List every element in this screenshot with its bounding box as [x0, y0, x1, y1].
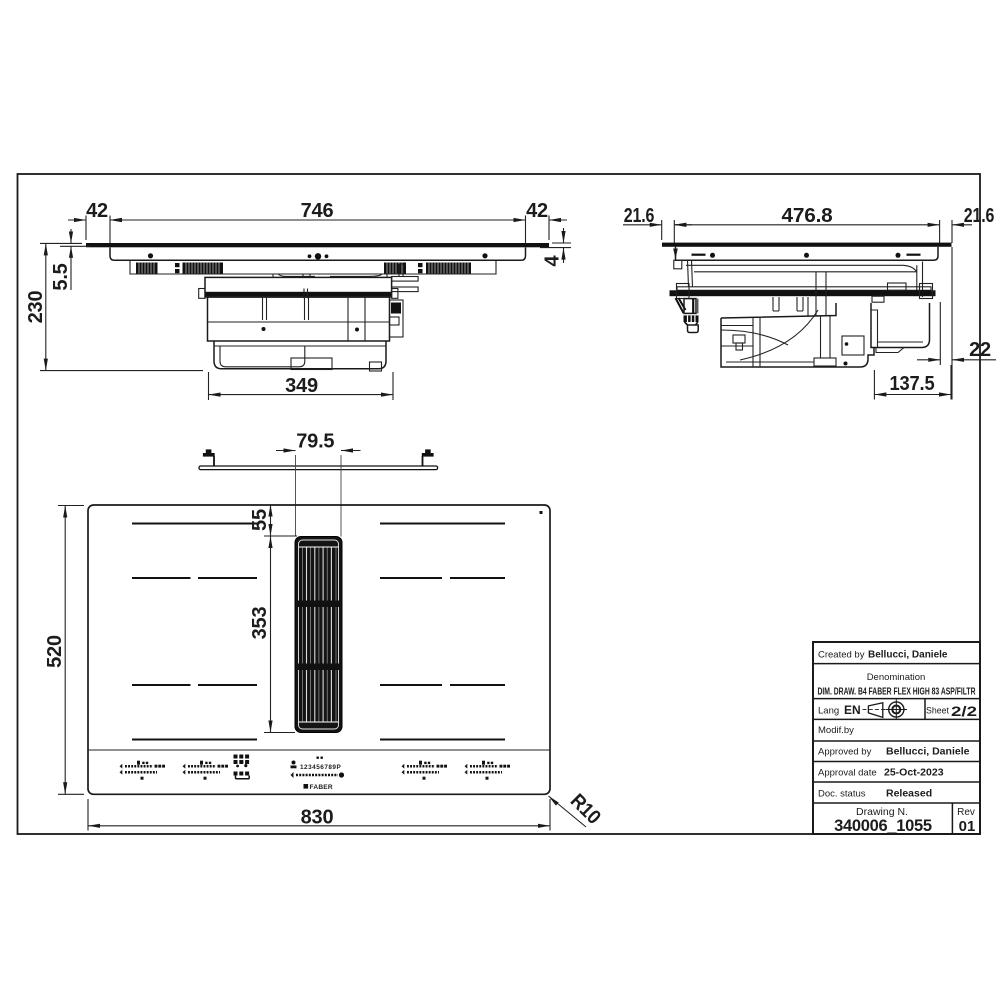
svg-text:Approval date: Approval date	[818, 768, 877, 779]
svg-text:42: 42	[86, 200, 108, 222]
svg-text:4: 4	[542, 254, 564, 266]
svg-text:Doc. status: Doc. status	[818, 789, 866, 800]
svg-text:55: 55	[249, 509, 271, 531]
svg-text:Released: Released	[886, 788, 932, 800]
svg-text:137.5: 137.5	[890, 373, 935, 395]
svg-text:DIM. DRAW. B4 FABER FLEX HIGH: DIM. DRAW. B4 FABER FLEX HIGH 83 ASP/FIL…	[818, 687, 977, 698]
svg-text:520: 520	[44, 635, 66, 668]
svg-text:830: 830	[301, 806, 334, 828]
svg-text:746: 746	[301, 200, 334, 222]
svg-text:Rev: Rev	[957, 807, 975, 818]
svg-text:Denomination: Denomination	[867, 672, 926, 683]
svg-text:21.6: 21.6	[624, 205, 655, 227]
svg-text:42: 42	[526, 200, 548, 222]
svg-text:Lang: Lang	[818, 706, 839, 717]
svg-text:Created by: Created by	[818, 650, 865, 661]
svg-text:5.5: 5.5	[50, 263, 72, 290]
svg-text:230: 230	[25, 291, 47, 324]
svg-text:Bellucci, Daniele: Bellucci, Daniele	[868, 650, 948, 661]
svg-text:2/2: 2/2	[951, 704, 977, 719]
svg-text:25-Oct-2023: 25-Oct-2023	[884, 767, 944, 779]
svg-text:353: 353	[249, 607, 271, 640]
svg-text:01: 01	[959, 818, 976, 835]
svg-text:22: 22	[969, 339, 991, 361]
svg-text:349: 349	[285, 375, 318, 397]
svg-text:Bellucci, Daniele: Bellucci, Daniele	[886, 746, 970, 758]
svg-text:Sheet: Sheet	[926, 706, 950, 716]
svg-text:123456789P: 123456789P	[300, 764, 341, 771]
svg-text:79.5: 79.5	[296, 431, 334, 453]
svg-text:Approved by: Approved by	[818, 747, 872, 758]
svg-text:Modif.by: Modif.by	[818, 725, 854, 736]
svg-text:EN: EN	[844, 703, 861, 717]
svg-text:21.6: 21.6	[964, 205, 995, 227]
svg-text:340006_1055: 340006_1055	[834, 817, 932, 835]
svg-text:FABER: FABER	[310, 784, 333, 791]
svg-text:476.8: 476.8	[782, 205, 833, 227]
